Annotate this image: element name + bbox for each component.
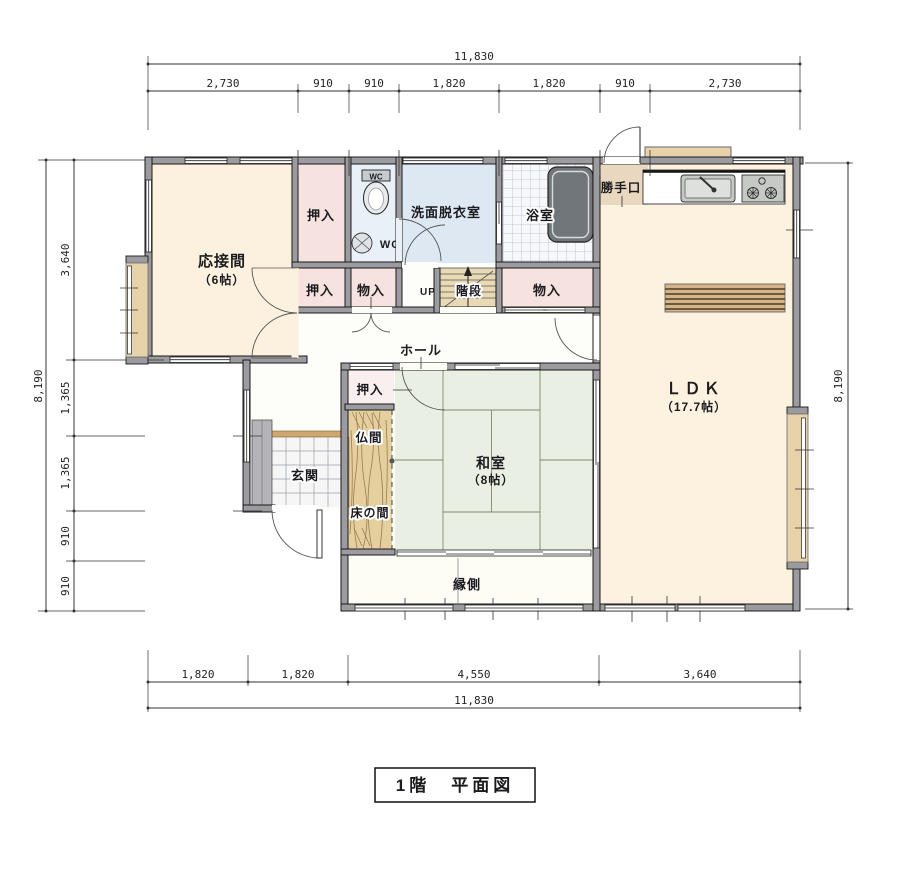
dim-top-5: 1,820	[532, 77, 565, 90]
dim-top-3: 910	[364, 77, 384, 90]
tokobashira-post	[389, 458, 394, 463]
window	[146, 180, 152, 252]
bathtub	[548, 167, 593, 242]
backdoor-label: 勝手口	[601, 180, 642, 195]
ldk-label: ＬＤＫ	[665, 381, 722, 398]
sliding-door	[497, 202, 502, 244]
oshiire-mid-label: 押入	[306, 283, 334, 298]
engawa-label: 縁側	[453, 577, 481, 592]
dim-bottom-2: 1,820	[281, 668, 314, 681]
window	[170, 357, 230, 363]
monoire-right-label: 物入	[533, 283, 561, 298]
sliding-door	[594, 380, 600, 548]
stairs-label: 階段	[456, 283, 482, 298]
dim-top-1: 2,730	[206, 77, 239, 90]
dim-top-7: 2,730	[708, 77, 741, 90]
window	[355, 605, 453, 611]
bath-label: 浴室	[526, 208, 554, 223]
dim-top-6: 910	[615, 77, 635, 90]
window	[505, 158, 547, 164]
window	[465, 605, 583, 611]
bay-window-right	[787, 407, 814, 569]
title-block: 1階 平面図	[375, 768, 535, 802]
dim-left-1: 3,640	[59, 243, 72, 276]
genkan-step-edge	[272, 431, 343, 437]
kitchen-counter	[643, 147, 785, 204]
dim-bottom-3: 4,550	[457, 668, 490, 681]
stove-icon	[742, 175, 784, 202]
window	[794, 210, 800, 258]
window	[733, 158, 785, 164]
washroom-label: 洗面脱衣室	[411, 205, 481, 220]
drawing-title: 1階 平面図	[396, 776, 514, 795]
dim-top-4: 1,820	[432, 77, 465, 90]
window	[240, 158, 292, 164]
genkan-label: 玄関	[291, 468, 319, 483]
oshiire-top-label: 押入	[307, 208, 335, 223]
window	[605, 605, 675, 611]
washitsu-size-label: （8帖）	[468, 472, 515, 487]
kitchen-sink-icon	[681, 175, 735, 202]
tokonoma-label: 床の間	[350, 505, 389, 520]
dim-bottom-1: 1,820	[181, 668, 214, 681]
ldk-size-label: （17.7帖）	[661, 399, 727, 414]
genkan-door-leaf	[317, 510, 322, 558]
bay-window-left	[120, 256, 148, 364]
butsuma-label: 仏間	[355, 431, 382, 445]
dim-left-2: 1,365	[59, 381, 72, 414]
washitsu-label: 和室	[476, 455, 506, 471]
hall-label: ホール	[400, 343, 442, 358]
dimension-right	[805, 162, 853, 611]
sliding-door	[397, 550, 591, 556]
dim-bottom-4: 3,640	[683, 668, 716, 681]
sliding-door	[505, 308, 585, 313]
window	[244, 390, 250, 462]
dimension-left	[38, 159, 145, 613]
reception-label: 応接間	[198, 252, 246, 270]
dim-left-total: 8,190	[32, 369, 45, 402]
window	[185, 158, 227, 164]
dim-right-total: 8,190	[832, 369, 845, 402]
window	[403, 158, 483, 164]
monoire-mid-label: 物入	[357, 283, 385, 298]
dim-bottom-total: 11,830	[454, 694, 494, 707]
stairs-up-label: UP	[420, 287, 436, 298]
dim-top-total: 11,830	[454, 50, 494, 63]
oshiire-center-label: 押入	[356, 382, 383, 397]
hand-basin-icon	[352, 233, 372, 253]
sliding-door	[455, 364, 540, 370]
dim-left-3: 1,365	[59, 456, 72, 489]
wc-upper-label: WC	[369, 173, 383, 182]
reception-size-label: （6帖）	[199, 272, 246, 287]
dim-left-5: 910	[59, 576, 72, 596]
door-arc	[272, 510, 320, 558]
dimension-top	[147, 56, 802, 130]
floor-plan-drawing: 11,830 2,730 910 910 1,820 1,820 910 2,7…	[0, 0, 912, 879]
ldk-counter	[665, 284, 785, 312]
dim-top-2: 910	[313, 77, 333, 90]
sliding-door	[350, 364, 393, 370]
window	[678, 605, 745, 611]
dim-left-4: 910	[59, 526, 72, 546]
floor-plan-page: 11,830 2,730 910 910 1,820 1,820 910 2,7…	[0, 0, 912, 879]
